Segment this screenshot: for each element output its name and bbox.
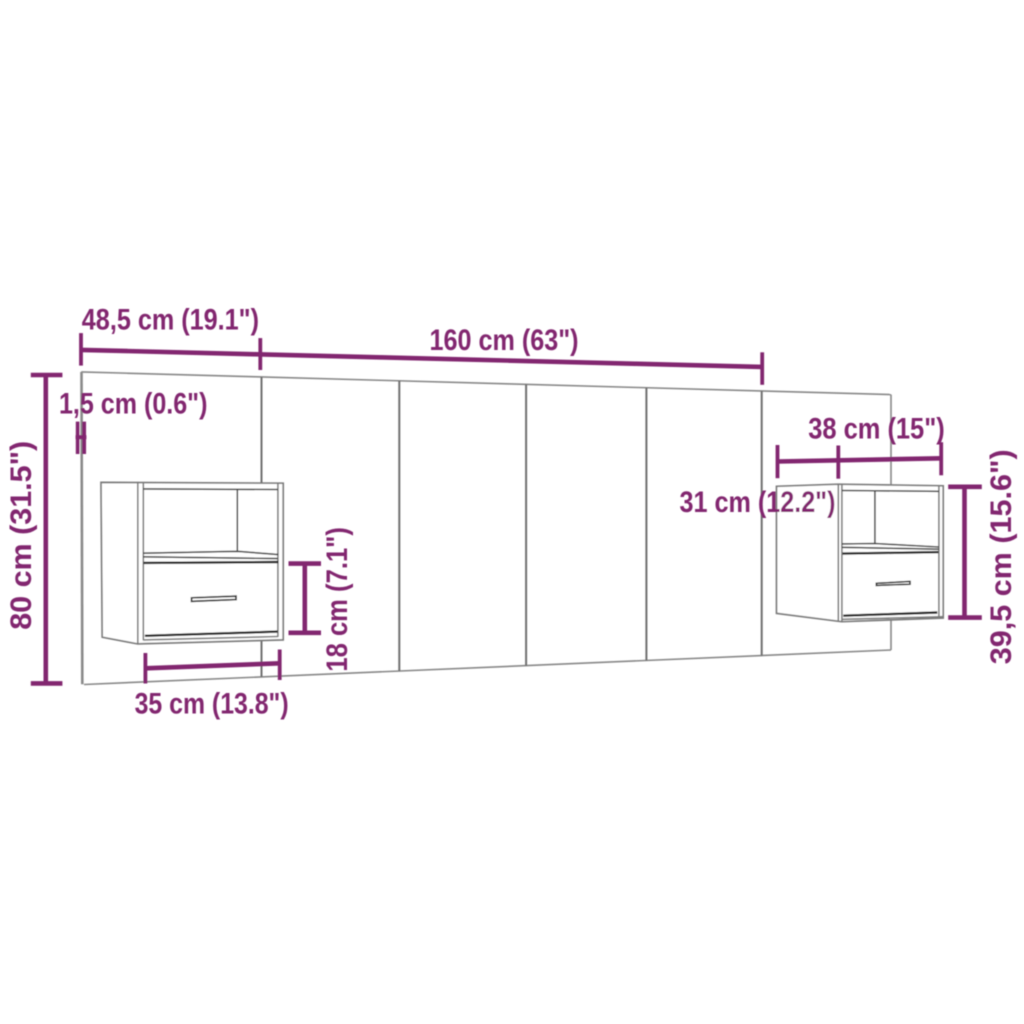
svg-text:35 cm (13.8"): 35 cm (13.8") — [135, 688, 289, 721]
svg-text:38 cm (15"): 38 cm (15") — [808, 413, 945, 446]
svg-text:39,5 cm (15.6"): 39,5 cm (15.6") — [985, 449, 1018, 664]
svg-text:48,5 cm (19.1"): 48,5 cm (19.1") — [82, 303, 259, 336]
svg-text:1,5 cm (0.6"): 1,5 cm (0.6") — [59, 388, 208, 421]
svg-text:18 cm (7.1"): 18 cm (7.1") — [321, 527, 354, 672]
svg-text:160 cm (63"): 160 cm (63") — [430, 324, 579, 357]
svg-text:31 cm (12.2"): 31 cm (12.2") — [680, 486, 836, 519]
svg-text:80 cm (31.5"): 80 cm (31.5") — [5, 441, 38, 630]
